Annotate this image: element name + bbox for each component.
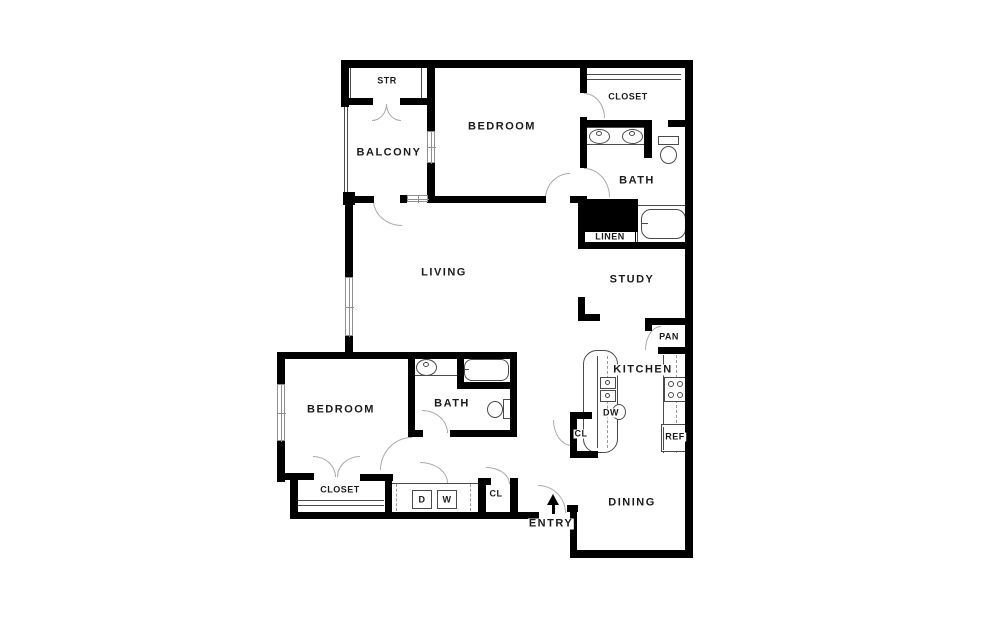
wall — [578, 242, 693, 249]
linen-block — [581, 199, 638, 232]
vanity1-faucet — [596, 131, 602, 136]
str-door-left-arc — [372, 104, 387, 121]
bathtub1-basin — [641, 209, 686, 239]
toilet1-bowl — [660, 146, 677, 164]
wall — [341, 60, 693, 68]
label-bedroom: BEDROOM — [306, 405, 376, 416]
label-closet: CLOSET — [319, 486, 361, 495]
bath2-door-arc — [422, 410, 448, 433]
closet1-rod — [587, 74, 681, 75]
wall — [427, 60, 435, 132]
wall — [578, 314, 600, 321]
label-bath: BATH — [618, 176, 656, 187]
island-sink-drain — [605, 380, 610, 385]
toilet2-bowl — [487, 401, 503, 418]
toilet1-tank — [658, 136, 679, 145]
burner — [677, 381, 683, 387]
wall — [400, 195, 407, 203]
label-kitchen: KITCHEN — [612, 365, 673, 376]
wall — [510, 478, 518, 519]
island-cabinet-line — [597, 356, 598, 448]
wall — [385, 478, 392, 514]
wall — [570, 451, 598, 458]
laundry-dash — [396, 484, 397, 511]
balcony-railing — [347, 106, 348, 194]
wall — [457, 382, 517, 389]
closet2-shelf — [297, 500, 384, 501]
label-w: W — [442, 496, 453, 505]
wall — [580, 60, 587, 93]
str-jamb — [350, 68, 351, 99]
str-door-right-arc — [386, 104, 401, 121]
label-closet: CLOSET — [607, 93, 649, 102]
label-ref: REF — [664, 433, 686, 442]
wall — [277, 352, 517, 359]
island-sink-drain — [605, 393, 610, 398]
label-cl: CL — [489, 490, 504, 499]
wall — [645, 318, 652, 331]
label-dw: DW — [602, 409, 620, 418]
bath2-faucet — [423, 362, 429, 367]
bath2-counter — [410, 375, 458, 376]
closet2-shelf — [297, 505, 384, 506]
wall — [408, 352, 415, 437]
wall — [277, 352, 285, 386]
bathtub1-faucet — [641, 223, 648, 224]
label-living: LIVING — [420, 268, 468, 279]
wall — [290, 512, 539, 519]
burner — [668, 381, 674, 387]
island-centerline — [607, 356, 608, 448]
wall — [510, 352, 517, 437]
closet2-door-left-arc — [313, 456, 336, 477]
wall — [478, 478, 491, 485]
wall — [450, 430, 517, 437]
label-d: D — [418, 496, 427, 505]
window — [277, 384, 285, 441]
wall — [345, 200, 353, 278]
label-dining: DINING — [607, 498, 657, 509]
label-str: STR — [376, 77, 398, 86]
wall — [353, 196, 374, 203]
closet1-rod — [587, 79, 681, 80]
vanity1-faucet — [629, 131, 635, 136]
wall — [277, 473, 314, 480]
window — [407, 195, 428, 202]
label-entry: ENTRY — [528, 519, 574, 530]
label-linen: LINEN — [594, 233, 626, 242]
closet1-door-arc — [584, 93, 605, 118]
laundry-front — [392, 483, 479, 484]
label-pan: PAN — [658, 333, 680, 342]
floor-plan: STRBALCONYBEDROOMCLOSETBATHLINENLIVINGST… — [0, 0, 998, 626]
str-jamb — [421, 68, 422, 99]
bedroom1-door-arc — [545, 173, 570, 199]
label-bedroom: BEDROOM — [467, 122, 537, 133]
wall — [427, 196, 546, 203]
label-balcony: BALCONY — [356, 148, 423, 159]
laundry-dash — [470, 484, 471, 511]
window — [345, 277, 353, 336]
closet2-door-right-arc — [337, 456, 360, 477]
balcony-door-arc — [373, 200, 402, 226]
label-cl: CL — [574, 430, 589, 439]
wall — [457, 352, 464, 385]
wall — [685, 60, 693, 558]
burner — [677, 392, 683, 398]
bedroom2-door-arc — [380, 437, 412, 470]
label-study: STUDY — [609, 275, 656, 286]
balcony-railing — [344, 106, 345, 194]
bathtub2-basin — [464, 359, 509, 381]
wall — [644, 120, 652, 158]
wall — [408, 430, 423, 437]
laundry-door-arc — [420, 462, 448, 483]
wall — [658, 347, 693, 354]
window — [427, 131, 435, 163]
entry-door-arc — [538, 485, 566, 513]
wall — [581, 120, 652, 127]
stove — [664, 377, 686, 402]
bath1-door-arc — [584, 168, 610, 197]
burner — [668, 392, 674, 398]
wall — [341, 98, 373, 105]
wall — [570, 550, 693, 558]
wall — [668, 120, 693, 127]
wall — [645, 318, 693, 325]
label-bath: BATH — [433, 399, 471, 410]
